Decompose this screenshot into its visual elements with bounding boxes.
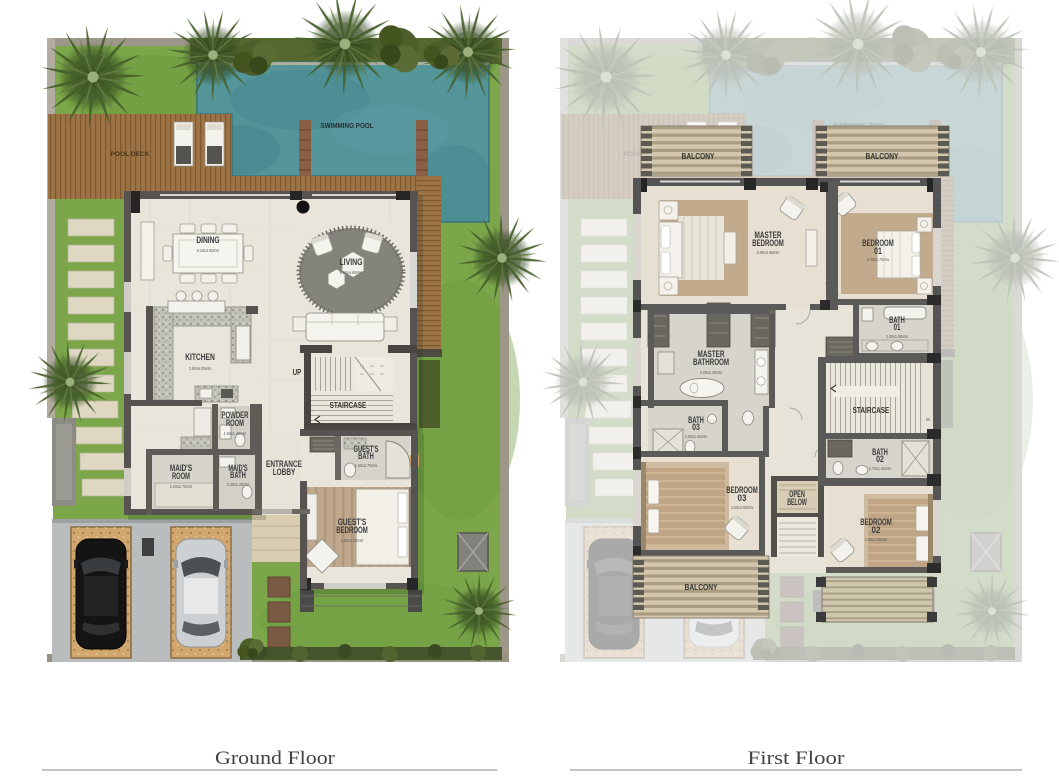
svg-text:KITCHEN: KITCHEN — [185, 352, 215, 362]
svg-text:BEDROOM: BEDROOM — [336, 525, 368, 535]
svg-text:First Floor: First Floor — [748, 748, 846, 769]
svg-text:03: 03 — [738, 493, 747, 503]
svg-text:BATH: BATH — [230, 470, 246, 480]
svg-text:3.00x2.30mts: 3.00x2.30mts — [700, 370, 723, 375]
svg-text:UP: UP — [293, 368, 302, 377]
svg-text:2.30x1.20mts: 2.30x1.20mts — [227, 482, 250, 487]
svg-text:3.00x1.80mts: 3.00x1.80mts — [886, 334, 909, 339]
svg-text:3.00x1.60mts: 3.00x1.60mts — [685, 434, 708, 439]
svg-text:03: 03 — [692, 422, 700, 432]
svg-text:6.60x4.60mts: 6.60x4.60mts — [340, 270, 363, 275]
svg-text:POOL DECK: POOL DECK — [111, 151, 150, 158]
svg-text:4.50x4.00mts: 4.50x4.00mts — [731, 505, 754, 510]
svg-text:01: 01 — [874, 246, 882, 256]
svg-text:1.60x2.70mts: 1.60x2.70mts — [355, 463, 378, 468]
svg-text:BELOW: BELOW — [787, 497, 807, 507]
svg-text:ROOM: ROOM — [226, 418, 244, 428]
svg-text:01: 01 — [894, 322, 901, 332]
svg-text:2.70x1.60mts: 2.70x1.60mts — [869, 466, 892, 471]
svg-text:SWIMMING POOL: SWIMMING POOL — [320, 121, 373, 130]
svg-text:BALCONY: BALCONY — [685, 583, 719, 592]
svg-text:3.80x5.00mts: 3.80x5.00mts — [189, 366, 212, 371]
svg-text:3.35x4.70mts: 3.35x4.70mts — [867, 257, 890, 262]
svg-text:BALCONY: BALCONY — [866, 152, 900, 161]
svg-text:2.20x2.70mts: 2.20x2.70mts — [170, 484, 193, 489]
svg-text:BATH: BATH — [358, 451, 374, 461]
svg-text:BALCONY: BALCONY — [682, 152, 716, 161]
svg-text:DN: DN — [926, 417, 930, 422]
svg-text:STAIRCASE: STAIRCASE — [330, 401, 367, 410]
svg-text:LOBBY: LOBBY — [273, 467, 296, 477]
svg-text:4.20x4.00mts: 4.20x4.00mts — [865, 537, 888, 542]
svg-text:02: 02 — [876, 454, 884, 464]
svg-text:5.00x4.60mts: 5.00x4.60mts — [757, 250, 780, 255]
svg-text:02: 02 — [872, 525, 881, 535]
svg-text:BEDROOM: BEDROOM — [752, 238, 784, 248]
svg-text:5.18x4.60mts: 5.18x4.60mts — [197, 248, 220, 253]
svg-text:STAIRCASE: STAIRCASE — [853, 406, 890, 415]
svg-text:BATHROOM: BATHROOM — [693, 357, 729, 367]
svg-text:ROOM: ROOM — [172, 471, 190, 481]
svg-text:4.20x4.00mts: 4.20x4.00mts — [341, 538, 364, 543]
svg-text:Ground Floor: Ground Floor — [215, 748, 336, 769]
svg-text:LIVING: LIVING — [339, 257, 362, 267]
svg-text:1.55x1.40mts: 1.55x1.40mts — [224, 431, 247, 436]
svg-text:DINING: DINING — [196, 235, 219, 245]
